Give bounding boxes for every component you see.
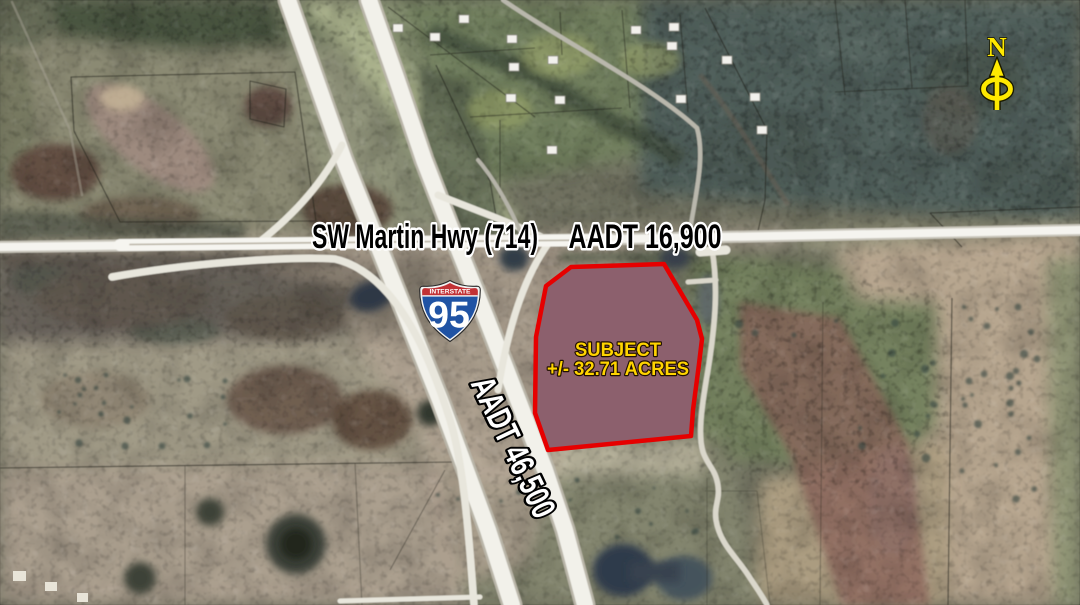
svg-text:SW Martin Hwy (714): SW Martin Hwy (714) [312, 218, 538, 256]
svg-text:+/- 32.71 ACRES: +/- 32.71 ACRES [547, 359, 689, 380]
svg-text:95: 95 [428, 294, 470, 336]
svg-text:AADT 16,900: AADT 16,900 [569, 218, 722, 256]
svg-text:SUBJECT: SUBJECT [575, 340, 661, 361]
